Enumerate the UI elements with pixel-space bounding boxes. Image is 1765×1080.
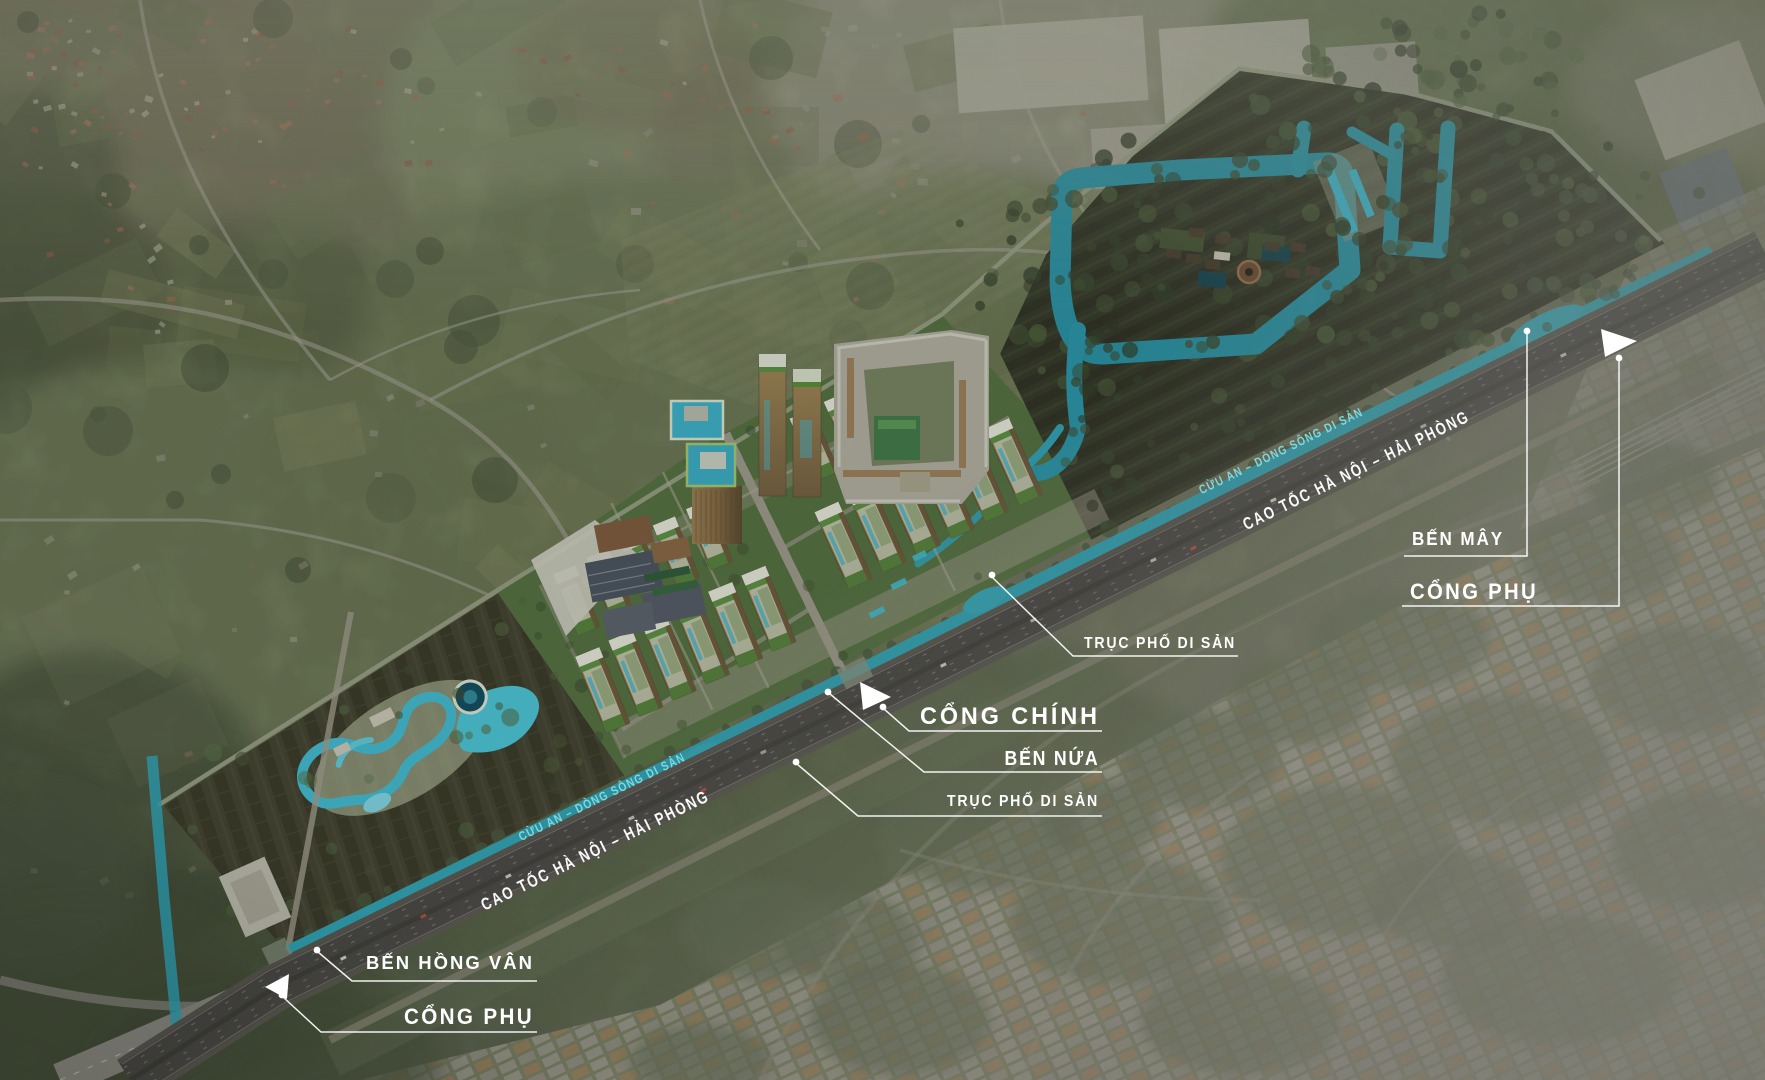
- svg-text:CỔNG PHỤ: CỔNG PHỤ: [404, 1004, 534, 1029]
- svg-text:CỔNG PHỤ: CỔNG PHỤ: [1410, 579, 1538, 604]
- svg-text:TRỤC PHỐ DI SẢN: TRỤC PHỐ DI SẢN: [1084, 632, 1236, 652]
- svg-text:TRỤC PHỐ DI SẢN: TRỤC PHỐ DI SẢN: [947, 790, 1099, 810]
- svg-text:BẾN HỒNG VÂN: BẾN HỒNG VÂN: [366, 952, 534, 973]
- svg-text:BẾN MÂY: BẾN MÂY: [1412, 528, 1504, 549]
- svg-text:CỔNG CHÍNH: CỔNG CHÍNH: [920, 702, 1100, 730]
- svg-text:BẾN NỨA: BẾN NỨA: [1005, 746, 1100, 770]
